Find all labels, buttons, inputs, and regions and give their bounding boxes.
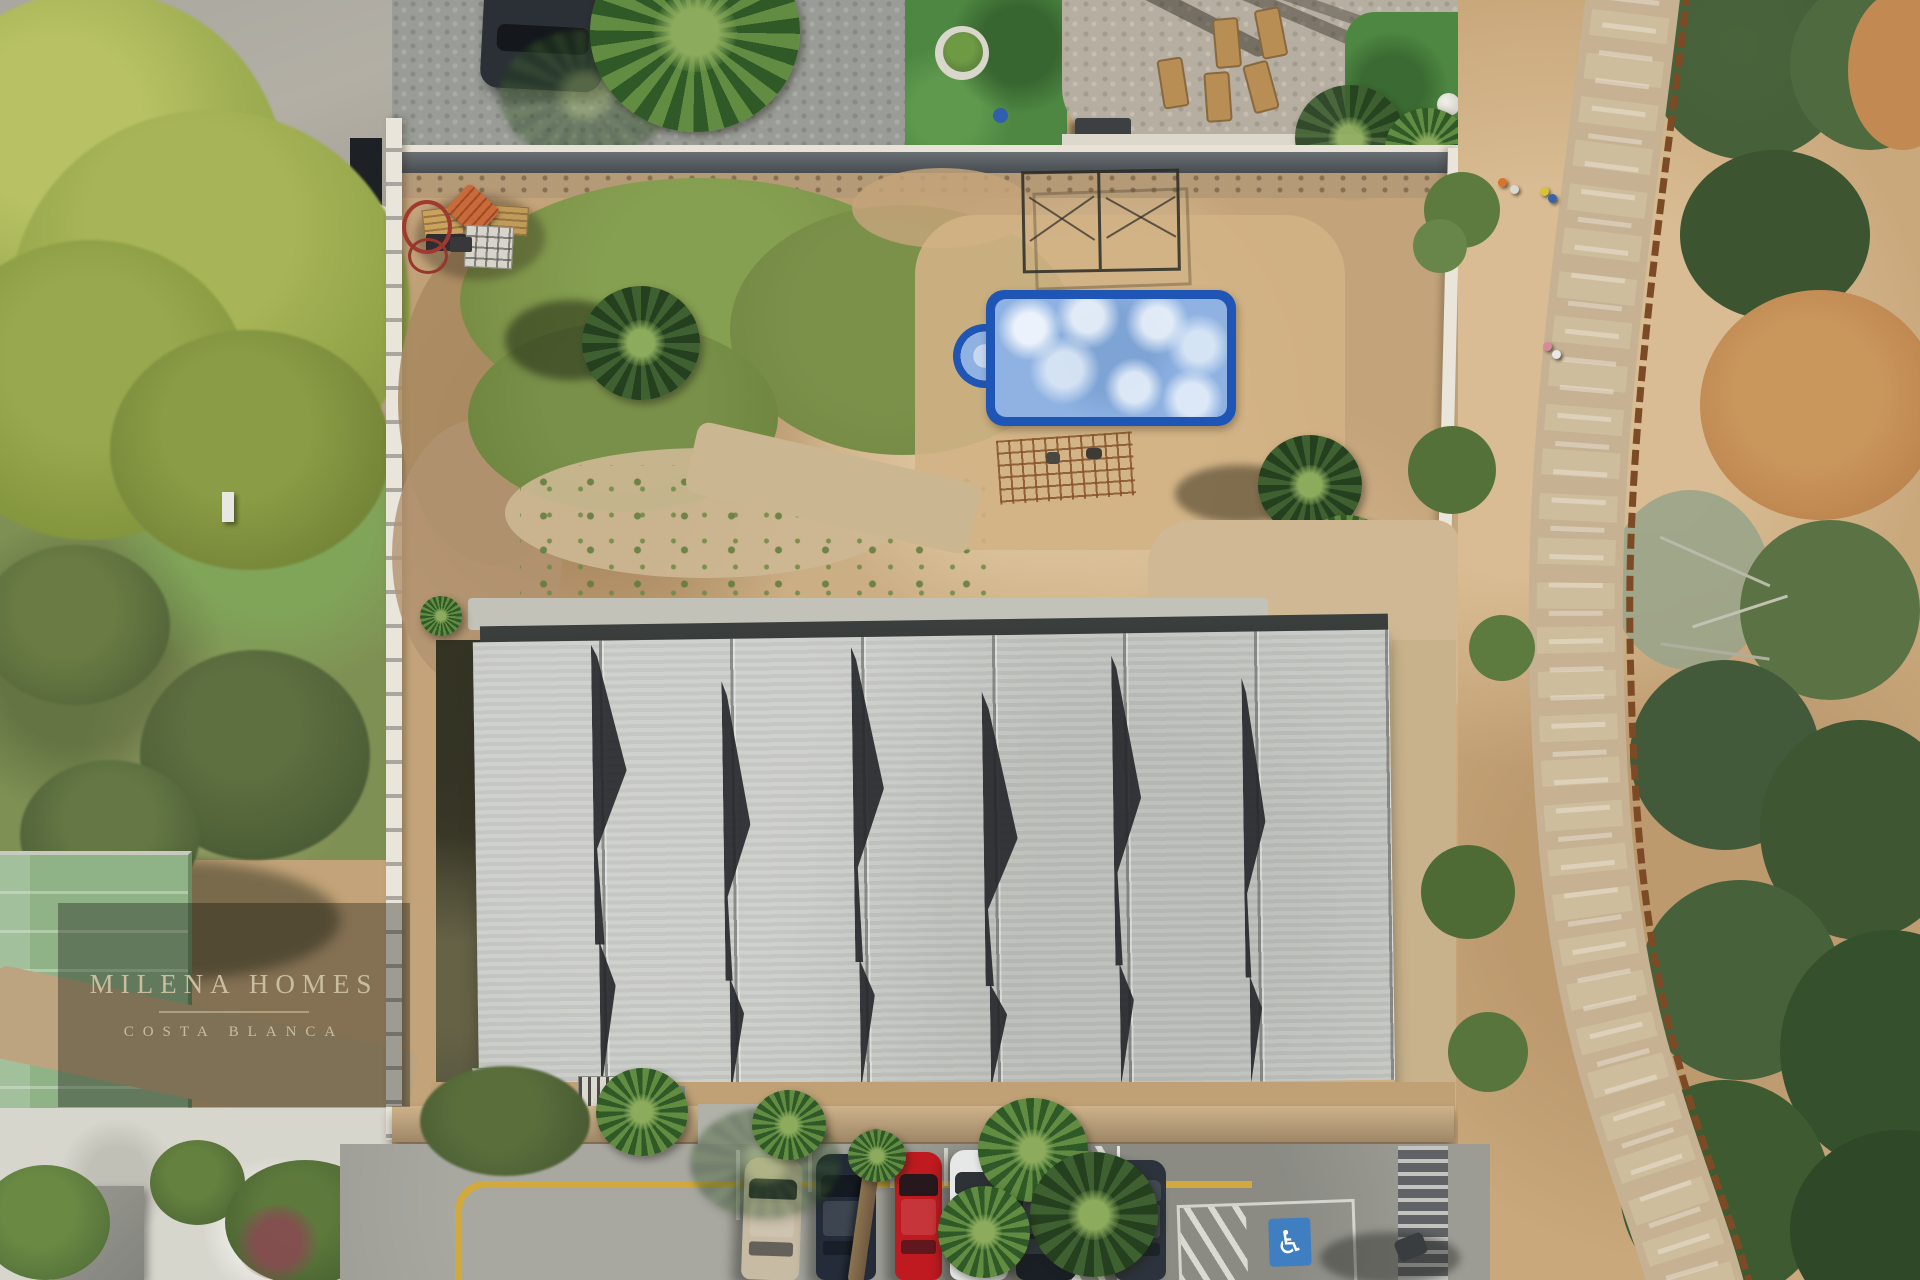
south-palm-cluster [1030,1152,1158,1277]
pedestrian [1498,178,1507,187]
watermark-panel: MILENA HOMES COSTA BLANCA [58,903,410,1107]
path-side-bush [1408,426,1496,514]
yard-palm [596,1068,688,1156]
red-car [895,1152,942,1280]
olive-tree-over-road [420,1066,590,1176]
wheelchair-icon: ♿ [1275,1226,1305,1259]
yard-palm [752,1090,826,1160]
path-side-bush [1469,615,1535,681]
pedestrian [1552,350,1561,359]
pedestrian [1540,187,1549,196]
path-side-bush [1413,219,1467,273]
watermark-title: MILENA HOMES [90,969,379,1000]
path-side-bush [1421,845,1515,939]
aerial-photo: ♿ MILENA HOMES COSTA BLANCA [0,0,1920,1280]
parking-bay-line [944,1148,948,1186]
handicap-bay-hatching [1180,1206,1249,1280]
pedestrian [1543,342,1552,351]
watermark-subtitle: COSTA BLANCA [124,1024,345,1041]
handicap-square: ♿ [1268,1217,1312,1266]
watermark-divider [159,1011,309,1013]
pedestrian [1548,194,1557,203]
south-palm-cluster [938,1186,1030,1278]
fence-shadow [1320,1232,1460,1280]
path-side-bush [1448,1012,1528,1092]
pedestrian [1510,185,1519,194]
palm-crown [848,1130,906,1182]
